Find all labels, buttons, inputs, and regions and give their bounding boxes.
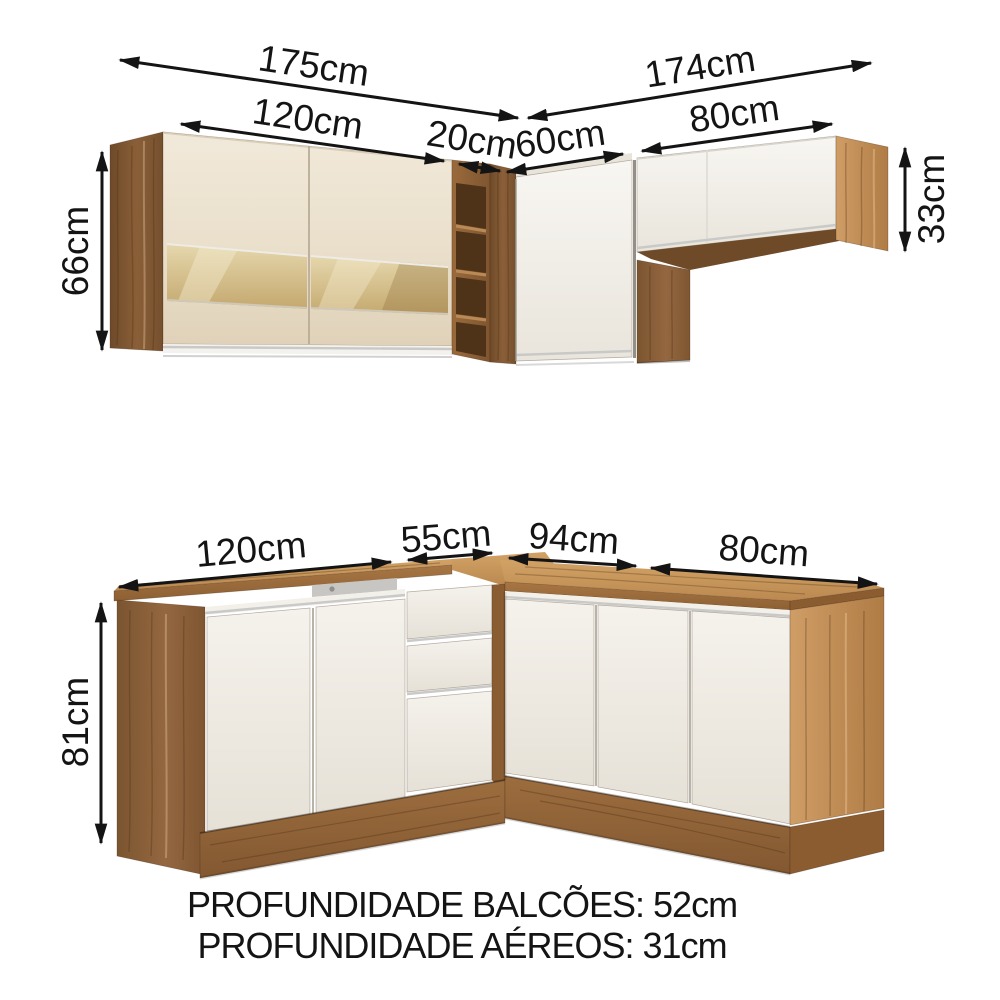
label-lower-corner: 55cm [399, 512, 492, 560]
corner-drawer-stack [407, 585, 492, 792]
lower-left-door-2 [316, 599, 405, 814]
depth-wall-cabinets-text: PROFUNDIDADE AÉREOS: 31cm [197, 925, 726, 966]
label-lower-height: 81cm [55, 677, 96, 767]
label-lower-right-inner: 94cm [527, 515, 620, 562]
label-upper-height-left: 66cm [55, 206, 96, 296]
lower-right-side-panel [790, 596, 884, 825]
lower-left-cabinet [114, 552, 570, 878]
corner-cabinet-door [516, 160, 632, 361]
lower-right-door-2 [598, 605, 688, 803]
diagram-canvas: 175cm 120cm 20cm 174cm 60cm 80cm 66cm 33… [0, 0, 1000, 1000]
lower-right-door-1 [505, 599, 594, 786]
upper-shelf-unit [452, 160, 490, 362]
shelf-opening [456, 277, 486, 318]
shelf-opening [456, 183, 486, 229]
label-upper-total-left: 175cm [256, 37, 372, 94]
depth-base-cabinets-text: PROFUNDIDADE BALCÕES: 52cm [187, 884, 737, 925]
label-lower-right: 80cm [717, 527, 810, 575]
footer-depth-notes: PROFUNDIDADE BALCÕES: 52cm PROFUNDIDADE … [187, 884, 737, 966]
drawer-2 [407, 638, 492, 692]
label-upper-height-right: 33cm [911, 154, 952, 244]
corner-post [490, 164, 516, 364]
label-lower-left: 120cm [194, 524, 308, 575]
lock-detail [329, 586, 334, 591]
drawer-1 [407, 585, 492, 639]
lower-left-door-1 [207, 608, 310, 831]
drawer-3 [407, 691, 492, 792]
lower-cabinets [114, 552, 884, 878]
lower-right-door-3 [692, 611, 790, 824]
label-upper-left: 120cm [250, 90, 366, 147]
kitchen-dimensions-diagram: 175cm 120cm 20cm 174cm 60cm 80cm 66cm 33… [0, 0, 1000, 1000]
label-upper-total-right: 174cm [642, 38, 758, 96]
lower-corner-post [492, 584, 505, 792]
upper-right-cabinet [637, 136, 888, 270]
shelf-opening [456, 231, 486, 273]
lower-right-cabinet [500, 560, 884, 874]
shelf-opening [456, 322, 486, 357]
upper-cabinets [110, 132, 888, 365]
corner-cabinet-side-column [637, 260, 690, 363]
upper-left-cabinet [110, 132, 452, 357]
upper-left-doors [163, 132, 452, 346]
